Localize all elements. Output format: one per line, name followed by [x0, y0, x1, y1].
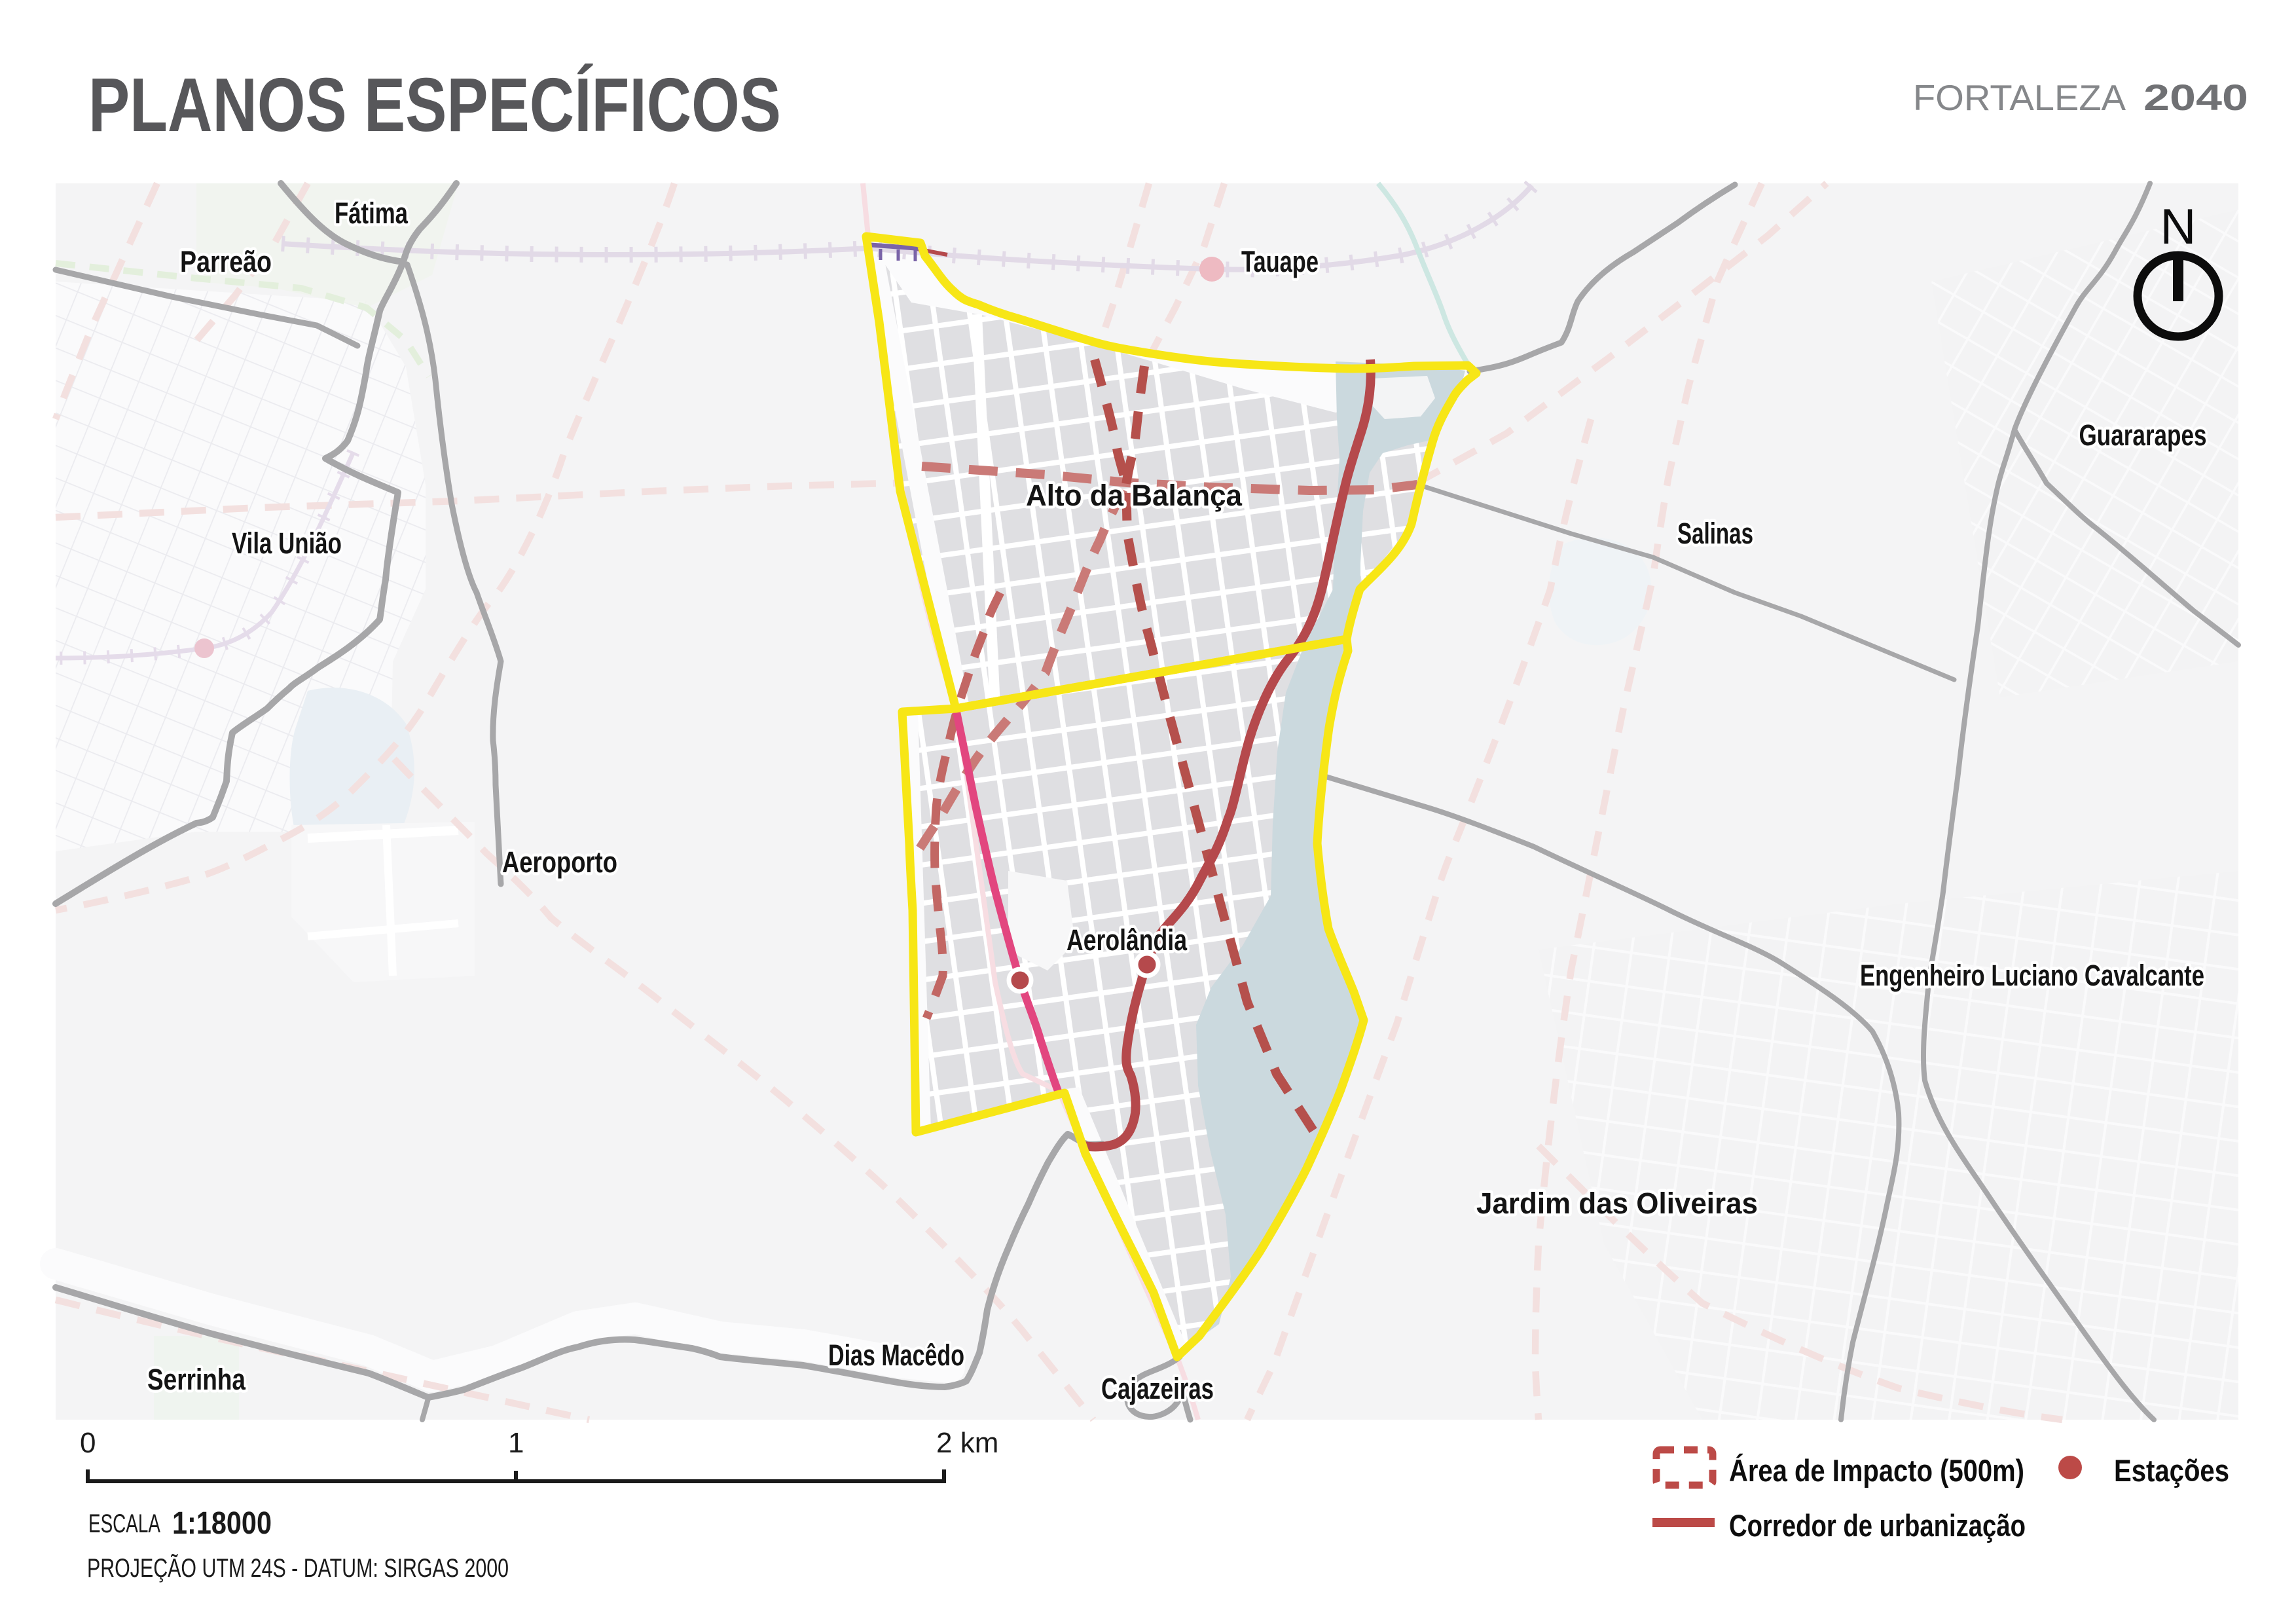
svg-text:FORTALEZA: FORTALEZA	[1913, 77, 2126, 118]
svg-text:2 km: 2 km	[936, 1427, 998, 1459]
svg-text:1: 1	[508, 1427, 524, 1459]
svg-text:Engenheiro Luciano Cavalcante: Engenheiro Luciano Cavalcante	[1860, 959, 2204, 992]
svg-text:Estações: Estações	[2114, 1453, 2229, 1488]
svg-text:Salinas: Salinas	[1677, 517, 1753, 550]
svg-text:Tauape: Tauape	[1241, 245, 1319, 278]
svg-text:ESCALA: ESCALA	[88, 1509, 160, 1538]
svg-text:0: 0	[80, 1427, 96, 1459]
svg-text:Aeroporto: Aeroporto	[502, 845, 617, 879]
svg-text:Cajazeiras: Cajazeiras	[1101, 1372, 1214, 1405]
svg-text:N: N	[2160, 199, 2196, 255]
svg-text:Fátima: Fátima	[335, 196, 409, 230]
svg-text:Dias Macêdo: Dias Macêdo	[828, 1338, 964, 1372]
svg-text:PLANOS ESPECÍFICOS: PLANOS ESPECÍFICOS	[88, 62, 781, 147]
svg-text:Área de Impacto (500m): Área de Impacto (500m)	[1729, 1453, 2024, 1488]
svg-text:Guararapes: Guararapes	[2079, 418, 2207, 452]
svg-text:Alto da Balança: Alto da Balança	[1026, 479, 1243, 512]
svg-text:PROJEÇÃO UTM 24S - DATUM: SIRG: PROJEÇÃO UTM 24S - DATUM: SIRGAS 2000	[87, 1553, 509, 1583]
svg-text:Vila União: Vila União	[232, 526, 342, 560]
svg-text:Parreão: Parreão	[180, 245, 272, 278]
svg-text:Jardim das Oliveiras: Jardim das Oliveiras	[1476, 1187, 1758, 1220]
svg-text:1:18000: 1:18000	[172, 1506, 272, 1541]
svg-text:2040: 2040	[2143, 77, 2248, 118]
svg-text:Aerolândia: Aerolândia	[1066, 923, 1188, 957]
svg-text:Corredor de urbanização: Corredor de urbanização	[1729, 1508, 2026, 1543]
svg-text:Serrinha: Serrinha	[147, 1363, 246, 1396]
